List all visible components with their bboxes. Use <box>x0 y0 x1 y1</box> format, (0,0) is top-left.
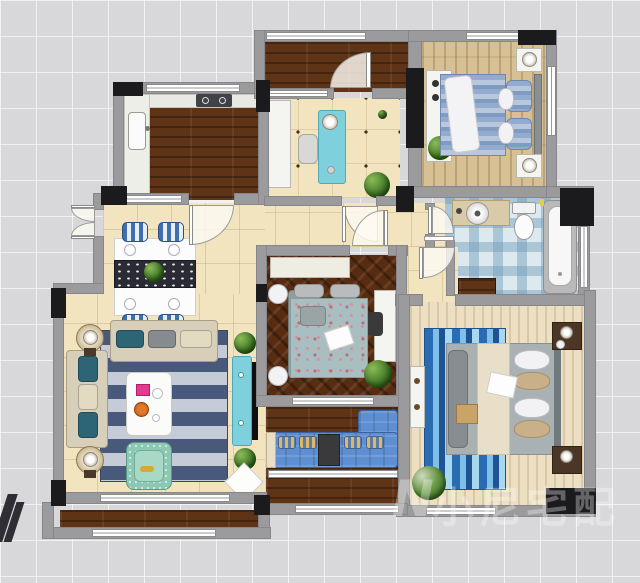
coffee-table-dish <box>134 402 149 417</box>
dining-plate <box>168 244 180 256</box>
balcony-pillow <box>366 436 384 449</box>
living-plant <box>234 332 256 354</box>
master-tv-cabinet-knob <box>414 404 420 410</box>
master-pillow <box>514 398 550 418</box>
bedroom3-door-leaf <box>384 210 388 246</box>
master-headboard <box>554 346 561 452</box>
wall <box>93 236 104 288</box>
master-door-leaf <box>419 247 423 279</box>
bedroom2-nightstand-lamp <box>522 52 537 67</box>
bedroom2-desk-item <box>432 80 439 87</box>
kitchen-burner <box>202 97 209 104</box>
pillar <box>254 495 270 515</box>
dining-centerpiece <box>144 262 164 282</box>
entry-door-arc <box>71 222 95 236</box>
coffee-table-cup <box>152 414 160 422</box>
pillar <box>518 30 556 45</box>
sofa-cushion-cream <box>78 384 98 410</box>
living-south-window <box>100 494 230 502</box>
pillar <box>101 186 127 205</box>
balcony-pillow <box>278 436 296 449</box>
kitchen-window <box>146 84 240 92</box>
master-nightstand-item <box>556 340 565 349</box>
coffee-table-plate <box>152 388 163 399</box>
side-table-lamp <box>83 452 98 467</box>
wall <box>264 196 342 206</box>
toilet-bowl <box>514 214 534 240</box>
pillar <box>396 186 414 212</box>
coffee-table-pink-box <box>136 384 150 396</box>
bathroom-faucet <box>456 208 462 214</box>
balcony-pillow <box>344 436 362 449</box>
wall <box>53 288 64 494</box>
master-pillow-tan <box>514 372 550 390</box>
study-table-lamp <box>322 114 338 130</box>
kitchen-door-leaf <box>189 205 193 245</box>
bedroom2-nightstand-lamp <box>522 158 537 173</box>
wall <box>408 186 556 198</box>
pillar <box>256 284 267 302</box>
study-cabinet <box>267 100 291 188</box>
kitchen-wood-floor <box>148 106 264 200</box>
master-nightstand-lamp <box>560 326 573 339</box>
study-partition-window <box>264 90 328 97</box>
bedroom3-pillow <box>294 284 324 298</box>
sofa-cushion-teal <box>78 356 98 382</box>
study-small-plant <box>378 110 387 119</box>
study-door-leaf <box>342 206 346 242</box>
bedroom2-side-window <box>547 66 556 136</box>
bedroom3-plant <box>364 360 392 388</box>
tv-console <box>232 356 252 446</box>
watermark-logo: N <box>392 470 434 528</box>
master-pillow <box>514 350 550 370</box>
floor-plan-canvas: N 小尼宅配 <box>0 0 640 583</box>
pillar <box>51 288 66 318</box>
bathroom-door-leaf <box>428 206 432 234</box>
wall <box>455 294 596 306</box>
sofa-cushion-teal <box>78 412 98 438</box>
bathroom-yellow-item <box>540 199 544 206</box>
bathroom-window <box>580 226 588 288</box>
master-bed-tray <box>456 404 478 424</box>
pillar <box>113 82 143 96</box>
bedroom3-pillow <box>330 284 360 298</box>
bedroom3-wardrobe <box>270 257 350 278</box>
entry-door-leaf <box>71 236 95 239</box>
sofa-cushion-cream <box>180 330 212 348</box>
balcony-south-window <box>295 505 399 513</box>
coffee-table <box>126 372 172 436</box>
bedroom2-window <box>466 32 524 40</box>
bedroom2-headboard <box>534 74 542 158</box>
kitchen-sink <box>128 112 146 150</box>
dining-plate <box>124 298 136 310</box>
bedroom3-pouf <box>268 284 288 304</box>
entry-door-arc <box>71 208 95 222</box>
master-tv-cabinet-knob <box>414 378 420 384</box>
dining-chair <box>158 222 184 242</box>
bedroom2-pillow-white <box>498 88 514 110</box>
bathroom-sink <box>466 202 489 225</box>
tv-console-knob <box>238 372 244 378</box>
sofa-cushion-gray <box>148 330 176 348</box>
balcony-inner-window <box>268 470 398 478</box>
wall <box>256 245 267 407</box>
north-balcony-window <box>266 32 366 40</box>
kitchen-burner <box>219 97 226 104</box>
balcony-sofa-armrest <box>266 432 276 468</box>
bath-threshold <box>424 236 454 241</box>
study-stool <box>298 134 318 164</box>
outer-balcony-window <box>92 529 216 537</box>
armchair-slippers <box>140 466 154 472</box>
toilet-tank <box>512 202 536 214</box>
bedroom3-chair <box>368 312 383 336</box>
sofa-cushion-teal <box>116 330 144 348</box>
side-table-lamp <box>83 330 98 345</box>
balcony-side-table <box>318 434 340 466</box>
bedroom2-desk-item <box>432 94 439 101</box>
balcony-pillow <box>299 436 317 449</box>
master-bed-runner <box>477 343 510 455</box>
watermark-text: 小尼宅配 <box>432 474 620 535</box>
bedroom2-pillow-white <box>498 122 514 144</box>
side-table-base <box>84 470 96 478</box>
master-nightstand-lamp <box>560 450 573 463</box>
study-plant <box>364 172 390 198</box>
kitchen-faucet <box>145 126 150 131</box>
bathtub-drain <box>558 272 562 276</box>
dining-plate <box>168 298 180 310</box>
bedroom3-window <box>292 397 374 405</box>
pillar <box>406 68 424 148</box>
bedroom3-pouf <box>268 366 288 386</box>
study-table-item <box>327 166 335 174</box>
side-table-base <box>84 348 96 356</box>
pillar <box>51 480 66 506</box>
pillar <box>560 188 594 226</box>
dining-chair <box>122 222 148 242</box>
master-bed-foot-cushion <box>448 350 468 448</box>
tv-console-knob <box>238 420 244 426</box>
bedroom3-cushion <box>300 306 326 326</box>
master-tv-cabinet <box>410 366 425 428</box>
master-pillow-tan <box>514 420 550 438</box>
wall <box>42 502 54 539</box>
north-balcony-door-leaf <box>366 52 371 88</box>
wall <box>256 245 350 256</box>
dining-plate <box>124 244 136 256</box>
pillar <box>256 80 270 112</box>
